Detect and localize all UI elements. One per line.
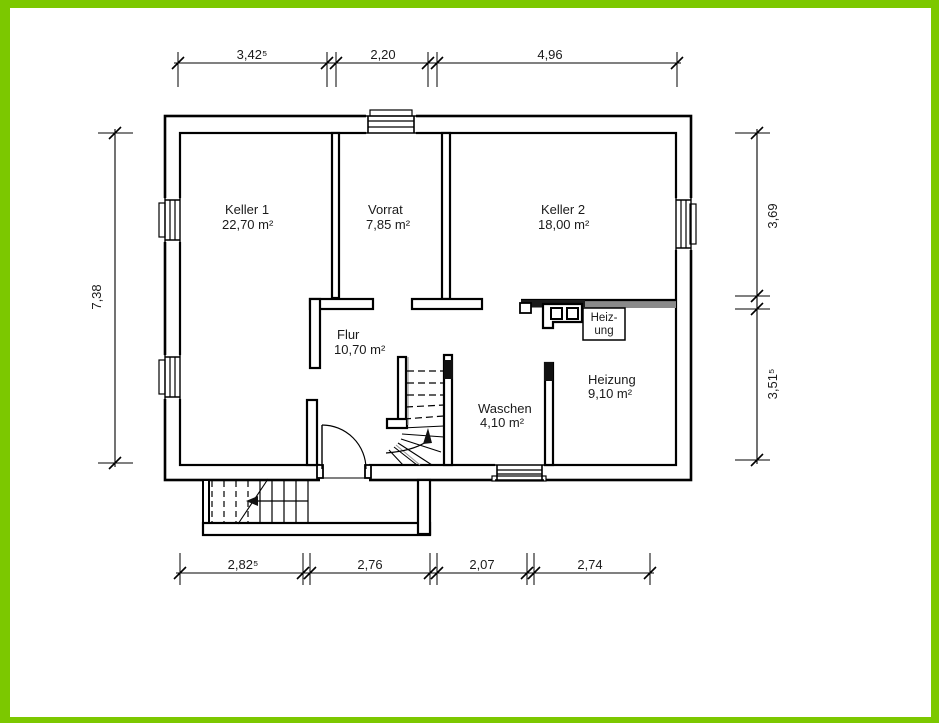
- heater-label-box: Heiz- ung: [583, 308, 625, 340]
- room-name-keller1: Keller 1: [225, 202, 269, 217]
- door-markers: [444, 360, 553, 381]
- room-name-waschen: Waschen: [478, 401, 532, 416]
- room-area-heizung: 9,10 m²: [588, 386, 633, 401]
- room-area-vorrat: 7,85 m²: [366, 217, 411, 232]
- dimension-chain-left: 7,38: [89, 127, 133, 469]
- room-area-keller1: 22,70 m²: [222, 217, 274, 232]
- window-bottom-waschen: [492, 463, 546, 482]
- room-name-keller2: Keller 2: [541, 202, 585, 217]
- room-area-waschen: 4,10 m²: [480, 415, 525, 430]
- dim-right-1: 3,69: [765, 203, 780, 228]
- window-left-upper: [159, 198, 182, 242]
- framed-floor-plan: Heiz- ung Keller 1 22,70 m² Vorrat 7,85: [0, 0, 939, 723]
- window-top-vorrat: [366, 110, 416, 135]
- room-name-vorrat: Vorrat: [368, 202, 403, 217]
- dim-left-1: 7,38: [89, 284, 104, 309]
- dim-top-1: 3,42⁵: [237, 47, 268, 62]
- exterior-door-opening: [317, 463, 371, 482]
- dim-top-3: 4,96: [537, 47, 562, 62]
- room-area-keller2: 18,00 m²: [538, 217, 590, 232]
- heater-label-line2: ung: [594, 325, 613, 337]
- interior-stairs: [386, 357, 444, 465]
- dim-bottom-3: 2,07: [469, 557, 494, 572]
- dimension-chain-right: 3,69 3,51⁵: [735, 127, 780, 466]
- exterior-stairs: [203, 479, 430, 535]
- chimney: [543, 304, 582, 328]
- dim-bottom-4: 2,74: [577, 557, 602, 572]
- dimension-chain-bottom: 2,82⁵ 2,76 2,07 2,74: [174, 553, 656, 585]
- window-left-lower: [159, 355, 182, 399]
- room-name-heizung: Heizung: [588, 372, 636, 387]
- window-right-keller2: [674, 198, 696, 250]
- dimension-chain-top: 3,42⁵ 2,20 4,96: [172, 47, 683, 87]
- heater-label-line1: Heiz-: [591, 312, 618, 324]
- dim-top-2: 2,20: [370, 47, 395, 62]
- room-name-flur: Flur: [337, 327, 360, 342]
- dim-bottom-1: 2,82⁵: [228, 557, 259, 572]
- dim-bottom-2: 2,76: [357, 557, 382, 572]
- dim-right-2: 3,51⁵: [765, 369, 780, 400]
- floor-plan-drawing: Heiz- ung Keller 1 22,70 m² Vorrat 7,85: [0, 0, 939, 723]
- room-area-flur: 10,70 m²: [334, 342, 386, 357]
- entry-door-swing: [322, 425, 366, 469]
